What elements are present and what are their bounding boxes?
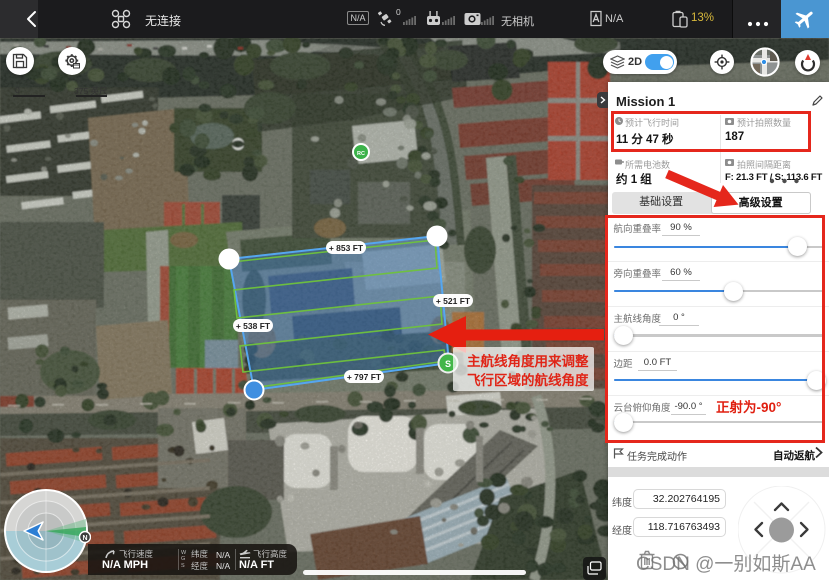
svg-text:飞行区域的航线角度: 飞行区域的航线角度 bbox=[467, 372, 589, 388]
svg-text:+ 853 FT: + 853 FT bbox=[329, 243, 364, 253]
svg-text:主航线角度用来调整: 主航线角度用来调整 bbox=[467, 353, 589, 369]
svg-text:N: N bbox=[82, 535, 87, 542]
svg-text:+ 521 FT: + 521 FT bbox=[436, 296, 471, 306]
svg-text:+ 538 FT: + 538 FT bbox=[236, 321, 271, 331]
svg-text:RC: RC bbox=[357, 151, 365, 157]
svg-text:S: S bbox=[445, 359, 451, 369]
svg-text:+ 797 FT: + 797 FT bbox=[347, 372, 382, 382]
